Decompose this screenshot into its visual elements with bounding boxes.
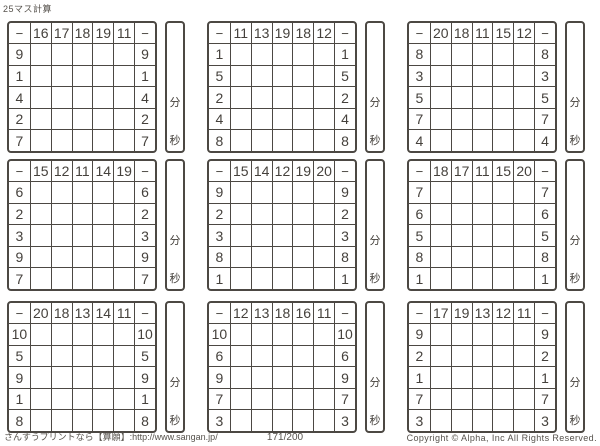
row-header-cell: 8: [9, 409, 30, 431]
answer-cell[interactable]: [230, 267, 251, 289]
answer-cell[interactable]: [451, 323, 472, 345]
col-header-cell: 16: [292, 303, 313, 323]
answer-cell[interactable]: [451, 388, 472, 410]
answer-cell[interactable]: [313, 366, 334, 388]
answer-cell[interactable]: [513, 181, 534, 203]
row-header-cell: 6: [9, 181, 30, 203]
answer-cell[interactable]: [51, 86, 72, 108]
answer-cell[interactable]: [451, 129, 472, 151]
answer-cell[interactable]: [113, 108, 134, 130]
timer-box: 分秒: [565, 21, 585, 153]
row-header-cell-right: 4: [134, 86, 155, 108]
answer-cell[interactable]: [292, 65, 313, 87]
grid-data-row: 55: [409, 86, 555, 108]
calc-grid-block: −1113191812−1155224488分秒: [207, 21, 385, 153]
answer-cell[interactable]: [513, 203, 534, 225]
operator-cell: −: [534, 23, 555, 43]
calc-grid: −1817111520−7766558811: [407, 159, 557, 291]
answer-cell[interactable]: [472, 323, 493, 345]
answer-cell[interactable]: [472, 108, 493, 130]
answer-cell[interactable]: [451, 409, 472, 431]
answer-cell[interactable]: [492, 65, 513, 87]
answer-cell[interactable]: [292, 267, 313, 289]
row-header-cell-right: 6: [134, 181, 155, 203]
answer-cell[interactable]: [492, 86, 513, 108]
answer-cell[interactable]: [251, 267, 272, 289]
answer-cell[interactable]: [251, 224, 272, 246]
answer-cell[interactable]: [513, 108, 534, 130]
answer-cell[interactable]: [313, 323, 334, 345]
answer-cell[interactable]: [430, 65, 451, 87]
col-header-cell: 13: [251, 303, 272, 323]
grid-data-row: 22: [9, 203, 155, 225]
answer-cell[interactable]: [92, 224, 113, 246]
answer-cell[interactable]: [451, 246, 472, 268]
answer-cell[interactable]: [430, 43, 451, 65]
answer-cell[interactable]: [113, 246, 134, 268]
answer-cell[interactable]: [292, 246, 313, 268]
answer-cell[interactable]: [472, 129, 493, 151]
col-header-cell: 15: [30, 161, 51, 181]
col-header-cell: 11: [113, 303, 134, 323]
answer-cell[interactable]: [492, 345, 513, 367]
answer-cell[interactable]: [472, 267, 493, 289]
answer-cell[interactable]: [430, 388, 451, 410]
answer-cell[interactable]: [51, 129, 72, 151]
operator-cell: −: [534, 161, 555, 181]
answer-cell[interactable]: [92, 181, 113, 203]
answer-cell[interactable]: [230, 181, 251, 203]
answer-cell[interactable]: [30, 409, 51, 431]
timer-box: 分秒: [165, 21, 185, 153]
answer-cell[interactable]: [472, 65, 493, 87]
answer-cell[interactable]: [451, 108, 472, 130]
answer-cell[interactable]: [30, 246, 51, 268]
answer-cell[interactable]: [72, 267, 93, 289]
answer-cell[interactable]: [92, 129, 113, 151]
answer-cell[interactable]: [313, 409, 334, 431]
grid-data-row: 22: [9, 108, 155, 130]
answer-cell[interactable]: [292, 43, 313, 65]
row-header-cell-right: 5: [134, 345, 155, 367]
answer-cell[interactable]: [472, 43, 493, 65]
answer-cell[interactable]: [513, 65, 534, 87]
grid-data-row: 77: [9, 129, 155, 151]
answer-cell[interactable]: [113, 129, 134, 151]
timer-box: 分秒: [565, 159, 585, 291]
row-header-cell: 1: [409, 267, 430, 289]
answer-cell[interactable]: [430, 181, 451, 203]
answer-cell[interactable]: [292, 323, 313, 345]
answer-cell[interactable]: [113, 86, 134, 108]
answer-cell[interactable]: [472, 246, 493, 268]
answer-cell[interactable]: [51, 203, 72, 225]
col-header-cell: 18: [272, 303, 293, 323]
answer-cell[interactable]: [272, 181, 293, 203]
answer-cell[interactable]: [272, 345, 293, 367]
answer-cell[interactable]: [492, 43, 513, 65]
answer-cell[interactable]: [272, 388, 293, 410]
answer-cell[interactable]: [472, 345, 493, 367]
answer-cell[interactable]: [292, 203, 313, 225]
grid-data-row: 33: [409, 65, 555, 87]
answer-cell[interactable]: [230, 224, 251, 246]
answer-cell[interactable]: [492, 323, 513, 345]
grid-data-row: 22: [409, 345, 555, 367]
row-header-cell: 10: [9, 323, 30, 345]
row-header-cell-right: 1: [334, 43, 355, 65]
answer-cell[interactable]: [72, 246, 93, 268]
answer-cell[interactable]: [430, 246, 451, 268]
answer-cell[interactable]: [430, 323, 451, 345]
answer-cell[interactable]: [251, 203, 272, 225]
answer-cell[interactable]: [472, 181, 493, 203]
answer-cell[interactable]: [272, 108, 293, 130]
answer-cell[interactable]: [313, 246, 334, 268]
answer-cell[interactable]: [251, 65, 272, 87]
answer-cell[interactable]: [272, 409, 293, 431]
row-header-cell-right: 4: [334, 108, 355, 130]
answer-cell[interactable]: [30, 65, 51, 87]
row-header-cell: 10: [209, 323, 230, 345]
answer-cell[interactable]: [92, 267, 113, 289]
answer-cell[interactable]: [492, 224, 513, 246]
answer-cell[interactable]: [72, 129, 93, 151]
answer-cell[interactable]: [92, 203, 113, 225]
answer-cell[interactable]: [313, 181, 334, 203]
grid-header-row: −1719131211−: [409, 303, 555, 323]
answer-cell[interactable]: [113, 43, 134, 65]
answer-cell[interactable]: [313, 43, 334, 65]
col-header-cell: 12: [313, 23, 334, 43]
answer-cell[interactable]: [451, 345, 472, 367]
answer-cell[interactable]: [113, 323, 134, 345]
row-header-cell: 5: [9, 345, 30, 367]
row-header-cell-right: 8: [334, 129, 355, 151]
operator-cell: −: [334, 23, 355, 43]
answer-cell[interactable]: [72, 203, 93, 225]
row-header-cell-right: 7: [534, 108, 555, 130]
row-header-cell: 1: [209, 43, 230, 65]
answer-cell[interactable]: [492, 388, 513, 410]
grid-data-row: 11: [409, 366, 555, 388]
answer-cell[interactable]: [472, 203, 493, 225]
operator-cell: −: [9, 303, 30, 323]
answer-cell[interactable]: [472, 409, 493, 431]
answer-cell[interactable]: [230, 65, 251, 87]
col-header-cell: 11: [113, 23, 134, 43]
answer-cell[interactable]: [113, 203, 134, 225]
answer-cell[interactable]: [30, 224, 51, 246]
col-header-cell: 18: [451, 23, 472, 43]
answer-cell[interactable]: [251, 86, 272, 108]
answer-cell[interactable]: [30, 203, 51, 225]
answer-cell[interactable]: [92, 86, 113, 108]
answer-cell[interactable]: [492, 267, 513, 289]
answer-cell[interactable]: [72, 409, 93, 431]
footer-site-text: さんすうプリントなら【算願】:http://www.sangan.jp/: [4, 430, 218, 443]
answer-cell[interactable]: [492, 203, 513, 225]
grid-header-row: −2018131411−: [9, 303, 155, 323]
answer-cell[interactable]: [430, 345, 451, 367]
answer-cell[interactable]: [492, 129, 513, 151]
answer-cell[interactable]: [451, 65, 472, 87]
answer-cell[interactable]: [30, 108, 51, 130]
answer-cell[interactable]: [313, 203, 334, 225]
answer-cell[interactable]: [113, 224, 134, 246]
answer-cell[interactable]: [92, 388, 113, 410]
row-header-cell-right: 6: [334, 345, 355, 367]
answer-cell[interactable]: [451, 267, 472, 289]
answer-cell[interactable]: [230, 108, 251, 130]
answer-cell[interactable]: [30, 181, 51, 203]
answer-cell[interactable]: [430, 129, 451, 151]
answer-cell[interactable]: [513, 345, 534, 367]
answer-cell[interactable]: [113, 388, 134, 410]
answer-cell[interactable]: [113, 267, 134, 289]
col-header-cell: 18: [430, 161, 451, 181]
answer-cell[interactable]: [451, 203, 472, 225]
answer-cell[interactable]: [313, 345, 334, 367]
answer-cell[interactable]: [313, 267, 334, 289]
answer-cell[interactable]: [272, 246, 293, 268]
answer-cell[interactable]: [230, 246, 251, 268]
answer-cell[interactable]: [51, 409, 72, 431]
answer-cell[interactable]: [30, 129, 51, 151]
answer-cell[interactable]: [230, 388, 251, 410]
answer-cell[interactable]: [492, 409, 513, 431]
answer-cell[interactable]: [230, 86, 251, 108]
answer-cell[interactable]: [251, 43, 272, 65]
answer-cell[interactable]: [51, 181, 72, 203]
answer-cell[interactable]: [272, 267, 293, 289]
answer-cell[interactable]: [292, 86, 313, 108]
answer-cell[interactable]: [230, 129, 251, 151]
answer-cell[interactable]: [513, 388, 534, 410]
answer-cell[interactable]: [272, 323, 293, 345]
grid-data-row: 55: [209, 65, 355, 87]
answer-cell[interactable]: [513, 246, 534, 268]
row-header-cell-right: 9: [334, 366, 355, 388]
answer-cell[interactable]: [472, 366, 493, 388]
answer-cell[interactable]: [492, 366, 513, 388]
operator-cell: −: [409, 23, 430, 43]
answer-cell[interactable]: [51, 267, 72, 289]
answer-cell[interactable]: [292, 108, 313, 130]
answer-cell[interactable]: [113, 181, 134, 203]
answer-cell[interactable]: [313, 129, 334, 151]
answer-cell[interactable]: [313, 224, 334, 246]
answer-cell[interactable]: [251, 409, 272, 431]
answer-cell[interactable]: [272, 65, 293, 87]
answer-cell[interactable]: [513, 129, 534, 151]
answer-cell[interactable]: [272, 203, 293, 225]
answer-cell[interactable]: [230, 323, 251, 345]
answer-cell[interactable]: [113, 65, 134, 87]
calc-grid: −1719131211−9922117733: [407, 301, 557, 433]
answer-cell[interactable]: [430, 267, 451, 289]
calc-grid: −1617181911−9911442277: [7, 21, 157, 153]
answer-cell[interactable]: [230, 203, 251, 225]
answer-cell[interactable]: [313, 65, 334, 87]
timer-box: 分秒: [165, 159, 185, 291]
answer-cell[interactable]: [451, 224, 472, 246]
answer-cell[interactable]: [292, 345, 313, 367]
answer-cell[interactable]: [251, 323, 272, 345]
answer-cell[interactable]: [92, 246, 113, 268]
answer-cell[interactable]: [30, 43, 51, 65]
answer-cell[interactable]: [430, 203, 451, 225]
answer-cell[interactable]: [72, 181, 93, 203]
answer-cell[interactable]: [30, 388, 51, 410]
col-header-cell: 19: [113, 161, 134, 181]
answer-cell[interactable]: [92, 323, 113, 345]
answer-cell[interactable]: [451, 86, 472, 108]
col-header-cell: 14: [92, 303, 113, 323]
answer-cell[interactable]: [92, 108, 113, 130]
answer-cell[interactable]: [451, 366, 472, 388]
answer-cell[interactable]: [113, 409, 134, 431]
operator-cell: −: [209, 161, 230, 181]
answer-cell[interactable]: [513, 267, 534, 289]
answer-cell[interactable]: [492, 108, 513, 130]
answer-cell[interactable]: [292, 409, 313, 431]
answer-cell[interactable]: [292, 181, 313, 203]
answer-cell[interactable]: [72, 43, 93, 65]
grid-data-row: 22: [209, 86, 355, 108]
answer-cell[interactable]: [251, 181, 272, 203]
answer-cell[interactable]: [251, 366, 272, 388]
answer-cell[interactable]: [51, 246, 72, 268]
answer-cell[interactable]: [251, 108, 272, 130]
answer-cell[interactable]: [451, 43, 472, 65]
answer-cell[interactable]: [30, 267, 51, 289]
answer-cell[interactable]: [513, 86, 534, 108]
grid-data-row: 1010: [9, 323, 155, 345]
row-header-cell-right: 3: [334, 409, 355, 431]
answer-cell[interactable]: [472, 224, 493, 246]
answer-cell[interactable]: [251, 388, 272, 410]
answer-cell[interactable]: [272, 129, 293, 151]
grid-data-row: 11: [9, 65, 155, 87]
row-header-cell: 7: [209, 388, 230, 410]
answer-cell[interactable]: [292, 366, 313, 388]
answer-cell[interactable]: [30, 86, 51, 108]
answer-cell[interactable]: [492, 181, 513, 203]
row-header-cell: 9: [409, 323, 430, 345]
answer-cell[interactable]: [113, 366, 134, 388]
row-header-cell-right: 9: [334, 181, 355, 203]
answer-cell[interactable]: [513, 409, 534, 431]
answer-cell[interactable]: [251, 246, 272, 268]
grid-data-row: 77: [409, 108, 555, 130]
answer-cell[interactable]: [313, 108, 334, 130]
answer-cell[interactable]: [430, 224, 451, 246]
answer-cell[interactable]: [430, 108, 451, 130]
answer-cell[interactable]: [430, 86, 451, 108]
answer-cell[interactable]: [430, 366, 451, 388]
answer-cell[interactable]: [92, 409, 113, 431]
answer-cell[interactable]: [272, 224, 293, 246]
answer-cell[interactable]: [230, 409, 251, 431]
row-header-cell: 2: [409, 345, 430, 367]
answer-cell[interactable]: [51, 323, 72, 345]
answer-cell[interactable]: [513, 323, 534, 345]
answer-cell[interactable]: [30, 366, 51, 388]
answer-cell[interactable]: [72, 224, 93, 246]
col-header-cell: 18: [292, 23, 313, 43]
answer-cell[interactable]: [513, 43, 534, 65]
answer-cell[interactable]: [51, 345, 72, 367]
answer-cell[interactable]: [230, 43, 251, 65]
answer-cell[interactable]: [272, 43, 293, 65]
row-header-cell-right: 9: [534, 323, 555, 345]
answer-cell[interactable]: [72, 108, 93, 130]
footer-copyright: Copyright © Alpha, Inc All Rights Reserv…: [407, 433, 597, 443]
row-header-cell-right: 2: [334, 86, 355, 108]
answer-cell[interactable]: [230, 345, 251, 367]
answer-cell[interactable]: [92, 345, 113, 367]
answer-cell[interactable]: [292, 388, 313, 410]
col-header-cell: 11: [472, 23, 493, 43]
answer-cell[interactable]: [513, 224, 534, 246]
col-header-cell: 12: [230, 303, 251, 323]
answer-cell[interactable]: [92, 366, 113, 388]
answer-cell[interactable]: [230, 366, 251, 388]
row-header-cell: 6: [209, 345, 230, 367]
answer-cell[interactable]: [313, 388, 334, 410]
answer-cell[interactable]: [113, 345, 134, 367]
answer-cell[interactable]: [30, 323, 51, 345]
col-header-cell: 13: [251, 23, 272, 43]
answer-cell[interactable]: [513, 366, 534, 388]
answer-cell[interactable]: [292, 129, 313, 151]
answer-cell[interactable]: [272, 86, 293, 108]
answer-cell[interactable]: [51, 366, 72, 388]
answer-cell[interactable]: [72, 388, 93, 410]
operator-cell: −: [334, 161, 355, 181]
answer-cell[interactable]: [472, 388, 493, 410]
answer-cell[interactable]: [72, 65, 93, 87]
answer-cell[interactable]: [51, 224, 72, 246]
row-header-cell: 9: [9, 43, 30, 65]
answer-cell[interactable]: [72, 323, 93, 345]
answer-cell[interactable]: [313, 86, 334, 108]
answer-cell[interactable]: [472, 86, 493, 108]
answer-cell[interactable]: [51, 43, 72, 65]
row-header-cell-right: 10: [334, 323, 355, 345]
answer-cell[interactable]: [51, 108, 72, 130]
answer-cell[interactable]: [72, 345, 93, 367]
answer-cell[interactable]: [72, 86, 93, 108]
row-header-cell-right: 10: [134, 323, 155, 345]
row-header-cell-right: 1: [334, 267, 355, 289]
answer-cell[interactable]: [92, 65, 113, 87]
answer-cell[interactable]: [451, 181, 472, 203]
answer-cell[interactable]: [251, 129, 272, 151]
answer-cell[interactable]: [272, 366, 293, 388]
answer-cell[interactable]: [492, 246, 513, 268]
footer-page-number: 171/200: [253, 432, 317, 443]
answer-cell[interactable]: [292, 224, 313, 246]
answer-cell[interactable]: [30, 345, 51, 367]
answer-cell[interactable]: [51, 65, 72, 87]
answer-cell[interactable]: [92, 43, 113, 65]
answer-cell[interactable]: [430, 409, 451, 431]
answer-cell[interactable]: [72, 366, 93, 388]
answer-cell[interactable]: [51, 388, 72, 410]
answer-cell[interactable]: [251, 345, 272, 367]
